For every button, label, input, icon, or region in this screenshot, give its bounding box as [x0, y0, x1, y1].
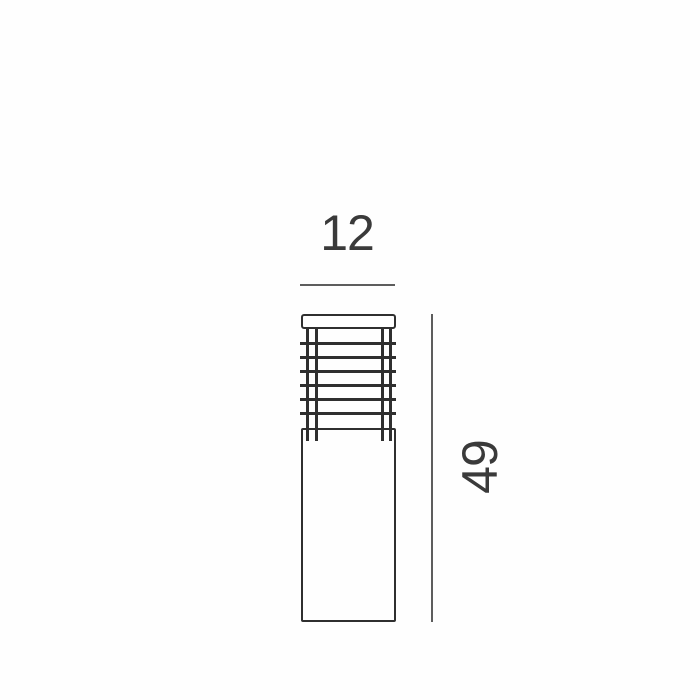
grille-bar: [300, 412, 396, 415]
height-dimension-label: 49: [451, 417, 509, 517]
width-dimension-line: [300, 284, 395, 286]
grille-bar: [300, 384, 396, 387]
dimension-drawing-canvas: 12 49: [0, 0, 700, 700]
bollard-light-drawing: [299, 312, 399, 623]
grille-bar: [300, 356, 396, 359]
grille-bar: [300, 342, 396, 345]
grille-bar: [300, 370, 396, 373]
height-dimension-line: [431, 314, 433, 622]
grille-bar: [300, 398, 396, 401]
width-dimension-label: 12: [297, 208, 397, 258]
fixture-top-cap: [301, 314, 396, 329]
fixture-body: [301, 428, 396, 622]
